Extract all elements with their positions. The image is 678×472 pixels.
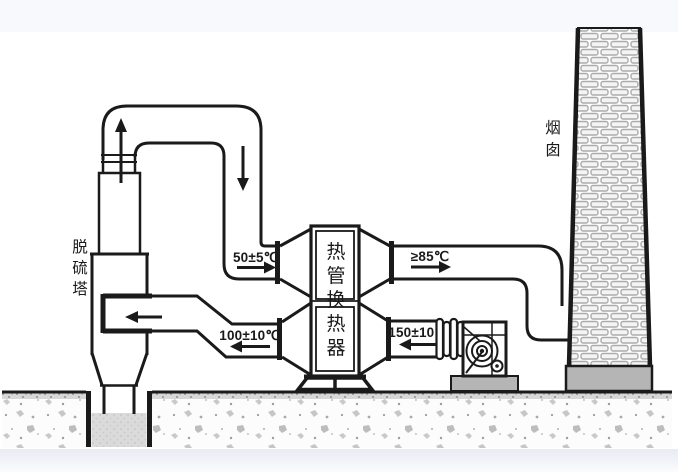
heat-exchanger-label: 热管换热器 xyxy=(326,241,345,359)
temp-label-85: ≥85℃ xyxy=(411,249,450,264)
fan-housing xyxy=(463,322,506,376)
pit-liquid xyxy=(92,413,147,447)
schematic-canvas: 烟囱 脱硫塔 xyxy=(0,0,678,472)
process-diagram: 烟囱 脱硫塔 xyxy=(0,0,678,472)
chimney-base xyxy=(566,366,652,391)
fan-bellows xyxy=(437,319,465,359)
temp-label-100: 100±10℃ xyxy=(219,328,281,343)
chimney-shaft xyxy=(569,28,650,366)
temp-label-50: 50±5℃ xyxy=(233,250,280,265)
fan-base xyxy=(451,376,518,391)
heat-exchanger-support xyxy=(298,377,372,390)
tower-label: 脱硫塔 xyxy=(72,238,88,298)
